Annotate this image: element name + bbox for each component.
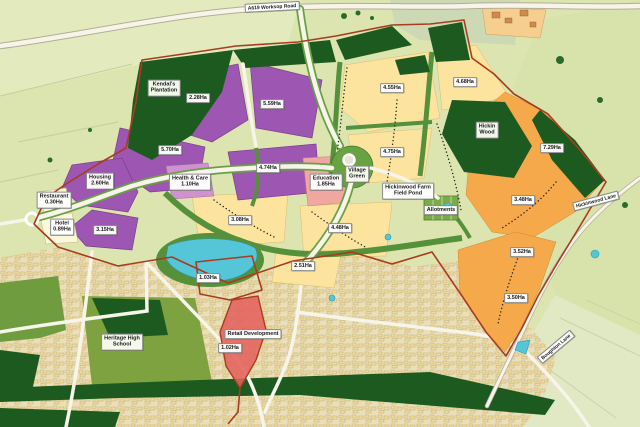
kendals-plantation-label: Kendal's Plantation [148, 80, 181, 97]
parcel-4-68ha-label: 4.68Ha [453, 77, 477, 87]
parcel-5-59ha-label: 5.59Ha [260, 99, 284, 109]
parcel-4-48ha-label: 4.48Ha [328, 223, 352, 233]
hickinwood-farm-pond-label: Hickinwood Farm Field Pond [382, 183, 434, 200]
parcel-3-52ha-label: 3.52Ha [510, 247, 534, 257]
road-boughton-lane-label: Boughton Lane [537, 330, 576, 365]
parcel-4-74ha-label: 4.74Ha [256, 163, 280, 173]
retail-development-label: Retail Development [224, 329, 281, 339]
parcel-4-55ha-label: 4.55Ha [380, 83, 404, 93]
road-a619-label: A619 Worksop Road [245, 1, 300, 13]
parcel-3-50ha-label: 3.50Ha [504, 293, 528, 303]
parcel-3-15ha-label: 3.15Ha [93, 225, 117, 235]
parcel-5-70ha-label: 5.70Ha [158, 145, 182, 155]
allotments-label: Allotments [424, 205, 458, 215]
parcel-health-care-label: Health & Care 1.10Ha [169, 174, 211, 191]
parcel-education-label: Education 1.85Ha [310, 174, 343, 191]
parcel-1-02ha-label: 1.02Ha [218, 343, 242, 353]
parcel-hotel-label: Hotel 0.89Ha [50, 219, 74, 236]
map-labels-layer: A619 Worksop RoadKendal's Plantation2.28… [0, 0, 640, 427]
hickin-wood-label: Hickin Wood [476, 122, 499, 139]
parcel-2-51ha-label: 2.51Ha [291, 261, 315, 271]
parcel-3-48ha-label: 3.48Ha [511, 195, 535, 205]
heritage-high-school-label: Heritage High School [101, 334, 143, 351]
parcel-2-28ha-label: 2.28Ha [186, 93, 210, 103]
parcel-3-08ha-label: 3.08Ha [228, 215, 252, 225]
parcel-7-29ha-label: 7.29Ha [540, 143, 564, 153]
parcel-1-03ha-label: 1.03Ha [196, 273, 220, 283]
parcel-4-75ha-label: 4.75Ha [380, 147, 404, 157]
road-hickinwood-lane-label: Hickinwood Lane [572, 190, 620, 211]
masterplan-map: A619 Worksop RoadKendal's Plantation2.28… [0, 0, 640, 427]
parcel-restaurant-label: Restaurant 0.30Ha [37, 192, 72, 209]
village-green-label: Village Green [345, 166, 369, 183]
parcel-housing-2-60ha-label: Housing 2.60Ha [86, 173, 114, 190]
